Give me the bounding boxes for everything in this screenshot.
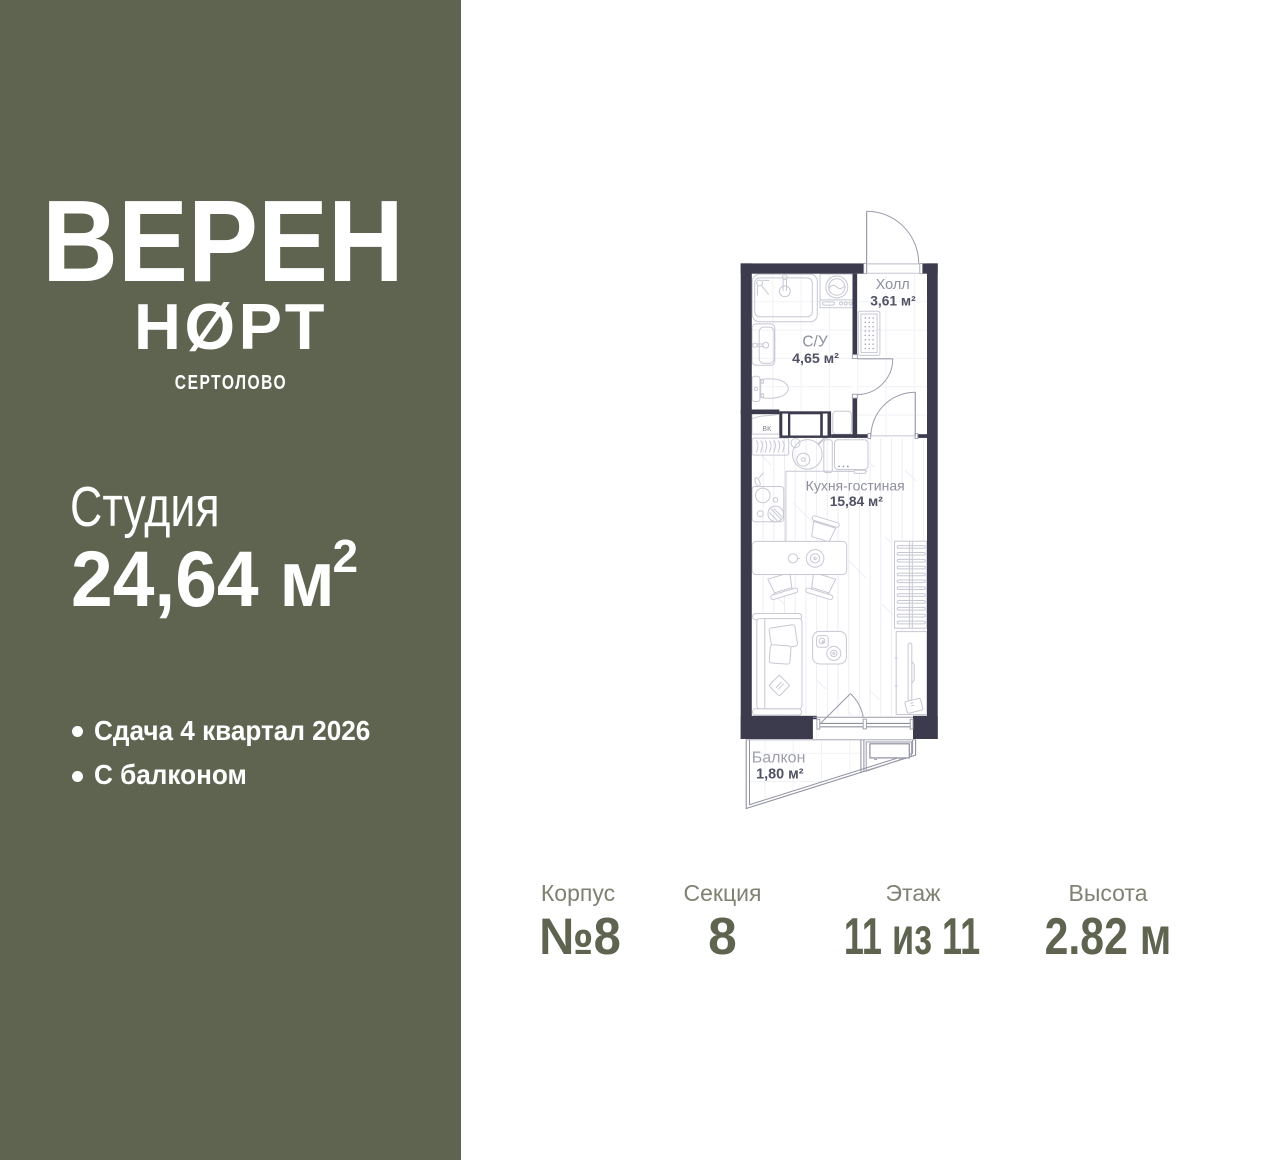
svg-text:ВК: ВК <box>762 426 772 433</box>
svg-text:С/У: С/У <box>802 334 828 351</box>
svg-text:Кухня-гостиная: Кухня-гостиная <box>806 478 905 494</box>
svg-text:3,61 м²: 3,61 м² <box>870 293 916 308</box>
svg-text:1,80 м²: 1,80 м² <box>756 767 804 783</box>
svg-text:Балкон: Балкон <box>752 750 806 767</box>
svg-text:15,84 м²: 15,84 м² <box>830 494 884 509</box>
svg-text:4,65 м²: 4,65 м² <box>792 351 839 367</box>
svg-text:Холл: Холл <box>876 277 910 293</box>
